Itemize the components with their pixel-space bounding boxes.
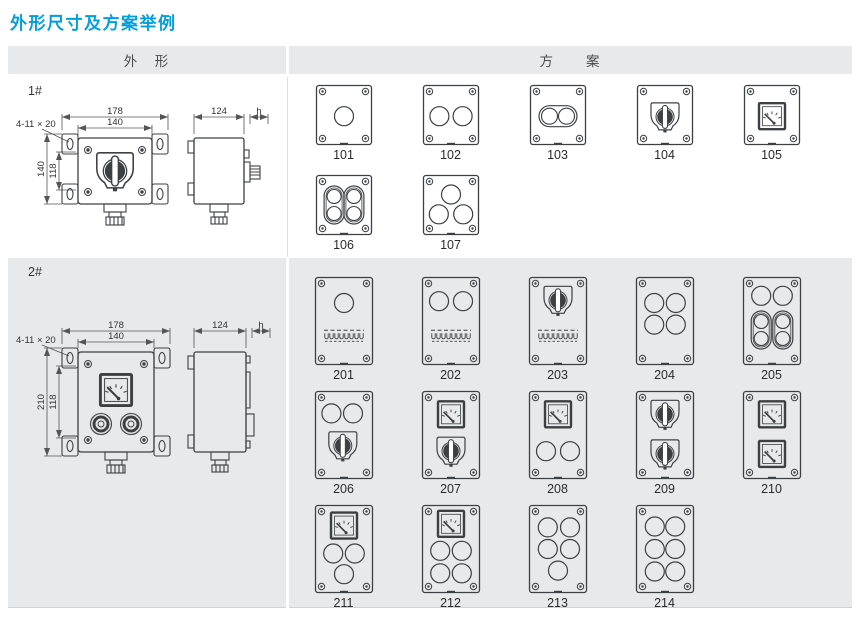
scheme-face [314,390,374,480]
scheme-face [528,390,588,480]
scheme-face [635,276,695,366]
scheme-107: 107 [422,174,480,252]
scheme-face [742,276,802,366]
scheme-code: 104 [654,148,675,162]
scheme-face [636,84,694,146]
scheme-104: 104 [636,84,694,162]
rotary-switch-front-1 [97,153,133,191]
outline-drawing-2: 178 140 210 118 4-11 × 20 124 h [14,302,279,502]
side-view-1 [188,138,260,224]
page-title: 外形尺寸及方案举例 [10,9,177,34]
button-front-2a [91,414,112,435]
dim-total-height-2: 210 [36,394,47,410]
scheme-213: 213 [528,504,588,610]
dim-depth-1: 124 [211,106,227,117]
scheme-203: 203 [528,276,588,382]
scheme-code: 214 [654,596,675,610]
dim-total-height-1: 140 [36,161,47,177]
scheme-face [315,84,373,146]
scheme-106: 106 [315,174,373,252]
dim-height-symbol-1: h [256,106,261,117]
scheme-code: 106 [333,238,354,252]
scheme-face [528,504,588,594]
dim-total-width-1: 178 [107,106,123,117]
header-scheme: 方 案 [289,46,852,74]
column-divider [287,77,288,256]
dim-depth-2: 124 [212,320,228,331]
scheme-face [528,276,588,366]
scheme-code: 103 [547,148,568,162]
scheme-code: 208 [547,482,568,496]
scheme-code: 213 [547,596,568,610]
scheme-code: 211 [334,596,354,610]
catalog-page: 外形尺寸及方案举例 外 形 方 案 1# 2# [0,0,860,635]
scheme-code: 202 [440,368,461,382]
scheme-code: 204 [654,368,675,382]
scheme-204: 204 [635,276,695,382]
scheme-202: 202 [421,276,481,382]
scheme-code: 210 [761,482,782,496]
dim-inner-width-2: 140 [108,331,124,342]
scheme-face [421,276,481,366]
scheme-207: 207 [421,390,481,496]
scheme-code: 105 [761,148,782,162]
scheme-face [314,504,374,594]
scheme-face [314,276,374,366]
scheme-face [742,390,802,480]
meter-front-2 [100,374,131,405]
scheme-208: 208 [528,390,588,496]
scheme-201: 201 [314,276,374,382]
scheme-205: 205 [742,276,802,382]
scheme-face [421,390,481,480]
dim-inner-width-1: 140 [107,117,123,128]
scheme-210: 210 [742,390,802,496]
scheme-206: 206 [314,390,374,496]
scheme-face [743,84,801,146]
dim-holes-2: 4-11 × 20 [16,335,56,346]
row-label-2: 2# [28,265,42,279]
outline-drawing-1: 178 140 140 118 4-11 × 20 124 h [14,94,279,254]
scheme-103: 103 [529,84,587,162]
scheme-code: 201 [333,368,354,382]
scheme-face [421,504,481,594]
scheme-211: 211 [314,504,374,610]
scheme-grid-2: 2012022032042052062072082092102112122132… [290,276,850,610]
dim-height-symbol-2: h [258,320,263,331]
scheme-102: 102 [422,84,480,162]
side-view-2 [188,352,254,472]
scheme-214: 214 [635,504,695,610]
dim-inner-height-1: 118 [48,163,59,178]
scheme-105: 105 [743,84,801,162]
scheme-209: 209 [635,390,695,496]
scheme-code: 212 [440,596,461,610]
scheme-code: 207 [440,482,461,496]
scheme-code: 206 [333,482,354,496]
scheme-face [635,504,695,594]
scheme-code: 102 [440,148,461,162]
scheme-code: 203 [547,368,568,382]
scheme-face [315,174,373,236]
scheme-code: 101 [333,148,354,162]
front-view-2 [62,348,170,473]
dim-inner-height-2: 118 [48,394,59,409]
scheme-face [422,84,480,146]
scheme-code: 205 [761,368,782,382]
dim-total-width-2: 178 [108,320,124,331]
scheme-face [529,84,587,146]
scheme-face [635,390,695,480]
button-front-2b [121,414,142,435]
scheme-face [422,174,480,236]
table-header: 外 形 方 案 [8,46,852,74]
scheme-code: 209 [654,482,675,496]
scheme-212: 212 [421,504,481,610]
dim-holes-1: 4-11 × 20 [16,119,56,130]
scheme-101: 101 [315,84,373,162]
header-outline: 外 形 [8,46,286,74]
scheme-code: 107 [440,238,461,252]
scheme-grid-1: 101102103104105106107 [290,84,850,252]
